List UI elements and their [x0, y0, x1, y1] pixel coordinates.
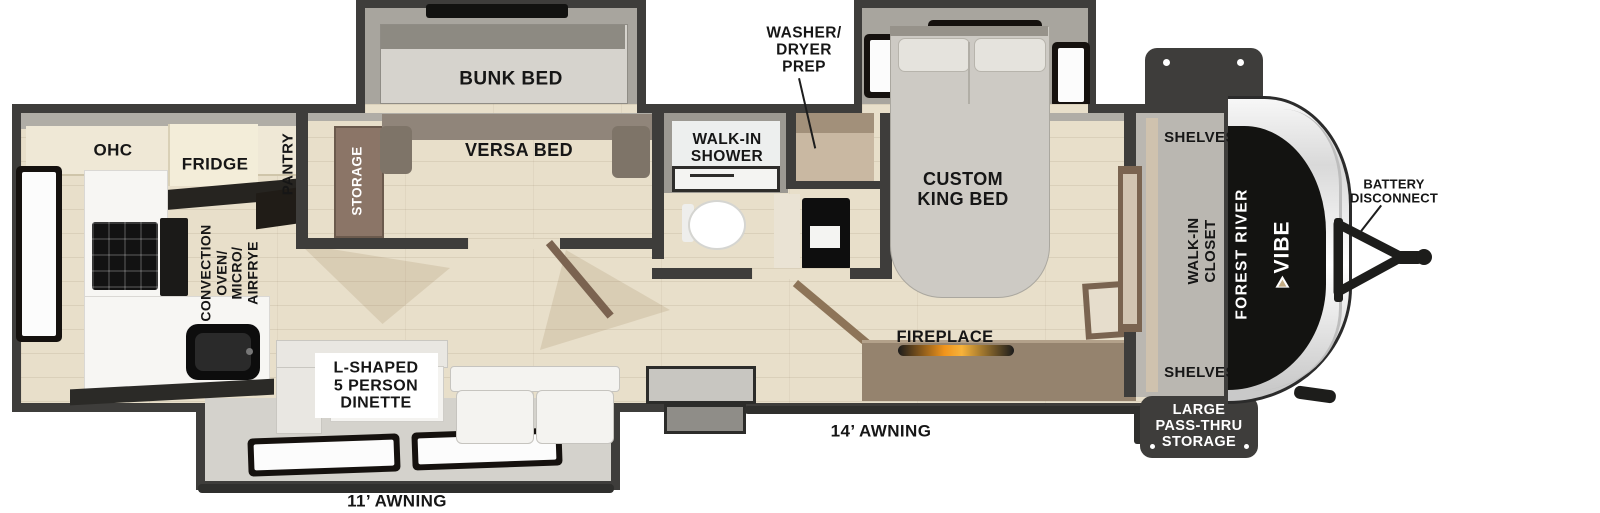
- overhead-cabinet: [26, 126, 302, 176]
- fireplace-flame: [898, 345, 1014, 356]
- storage-label: STORAGE: [349, 146, 364, 215]
- awning-14-label: 14’ AWNING: [831, 423, 932, 442]
- king-window-right-icon: [1052, 42, 1090, 108]
- washer-left-wall: [786, 113, 796, 189]
- shelves-top-label: SHELVES: [1164, 130, 1236, 147]
- hitch-icon: [1332, 212, 1432, 308]
- bunk-bolster: [381, 25, 625, 49]
- bath-door-opening: [752, 268, 850, 279]
- cooktop-icon: [92, 222, 158, 290]
- ohc-label: OHC: [94, 142, 133, 161]
- brand-maker: FOREST RIVER: [1234, 188, 1252, 319]
- entry-step: [664, 404, 746, 434]
- pantry-label: PANTRY: [281, 133, 298, 195]
- washer-dryer-prep-label: WASHER/ DRYER PREP: [766, 24, 841, 75]
- king-headboard: [890, 26, 1048, 36]
- closet-door-panel: [1123, 174, 1137, 324]
- toilet-icon: [688, 200, 746, 250]
- shower-door-handle: [690, 174, 734, 177]
- storage-rivet-icon: [1237, 59, 1244, 66]
- walk-in-shower-label: WALK-IN SHOWER: [691, 131, 763, 165]
- king-bed-crease: [968, 42, 970, 104]
- fireplace-label: FIREPLACE: [896, 328, 993, 346]
- awning-14-bar: [744, 406, 1146, 414]
- storage-rivet-icon: [1244, 444, 1249, 449]
- king-pillow: [898, 38, 970, 72]
- shelves-bottom-label: SHELVES: [1164, 365, 1236, 382]
- brand-logo: FOREST RIVER VIBE: [1215, 188, 1312, 319]
- dinette-window-icon: [247, 433, 400, 476]
- storage-rivet-icon: [1150, 444, 1155, 449]
- entry-landing: [646, 366, 756, 404]
- versa-left-wall: [296, 113, 308, 249]
- sofa-cushion: [536, 390, 614, 444]
- cap-skid: [1293, 385, 1336, 404]
- washer-bottom-wall: [786, 181, 886, 189]
- vibe-logo-mark: [1275, 276, 1289, 288]
- faucet-icon: [246, 348, 253, 355]
- sofa-back: [450, 366, 620, 392]
- sofa-cushion: [456, 390, 534, 444]
- vanity-sink: [810, 226, 840, 248]
- brand-model: VIBE: [1270, 221, 1294, 274]
- pass-thru-storage-label: LARGE PASS-THRU STORAGE: [1155, 403, 1242, 451]
- bath-door-panel: [774, 194, 800, 270]
- versa-armrest: [612, 126, 650, 178]
- bunk-bed-label: BUNK BED: [459, 70, 562, 91]
- fridge-label: FRIDGE: [182, 156, 249, 175]
- bath-left-wall: [652, 113, 664, 259]
- bunk-tv: [426, 4, 568, 18]
- oven-unit: [160, 218, 188, 296]
- kitchen-sink-basin: [195, 333, 251, 371]
- closet-shelf-strip: [1146, 118, 1158, 392]
- awning-11-label: 11’ AWNING: [347, 493, 447, 512]
- king-pillow: [974, 38, 1046, 72]
- floorplan-canvas: OHC FRIDGE PANTRY CONVECTION OVEN/ MICRO…: [0, 0, 1600, 513]
- kitchen-window-icon: [16, 166, 62, 342]
- dinette-label: L-SHAPED 5 PERSON DINETTE: [334, 360, 419, 413]
- storage-rivet-icon: [1163, 59, 1170, 66]
- convection-label: CONVECTION OVEN/ MICRO/ AIRFRYE: [199, 224, 262, 321]
- versa-armrest: [380, 126, 412, 174]
- versa-bed-label: VERSA BED: [465, 141, 573, 161]
- brand-model-line: VIBE: [1270, 188, 1294, 319]
- battery-disconnect-label: BATTERY DISCONNECT: [1350, 178, 1438, 207]
- custom-king-bed-label: CUSTOM KING BED: [917, 170, 1008, 210]
- shower-pan: [672, 166, 780, 192]
